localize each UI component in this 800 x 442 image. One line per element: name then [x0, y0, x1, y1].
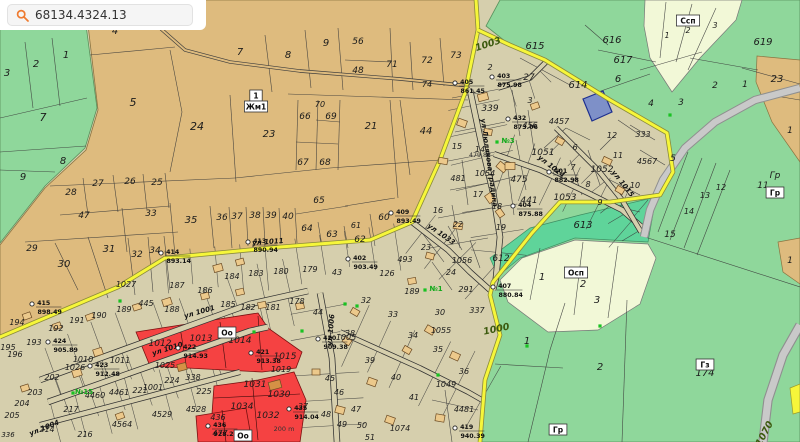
- map-label: 45: [325, 374, 335, 383]
- map-label: 1013: [190, 334, 213, 344]
- map-label: №1: [429, 285, 442, 293]
- map-label: 940.39: [461, 433, 485, 440]
- map-label: 1: [787, 256, 793, 266]
- green-point-marker: [118, 299, 121, 302]
- map-label: 421: [256, 349, 269, 356]
- map-label: №15: [75, 388, 93, 396]
- map-label: 2: [685, 26, 690, 35]
- map-label: 38: [249, 211, 261, 221]
- map-label: 32: [131, 250, 143, 260]
- map-label: 39: [365, 356, 375, 365]
- map-label: 893.49: [397, 218, 421, 225]
- map-label: 36: [216, 213, 228, 223]
- map-label: 13: [700, 191, 710, 200]
- map-label: 1056: [452, 256, 472, 265]
- map-label: 913.38: [257, 358, 281, 365]
- map-label: 60: [378, 213, 390, 223]
- map-label: 619: [753, 37, 772, 48]
- map-label: 420: [323, 335, 337, 342]
- map-label: 1: [539, 272, 545, 283]
- map-label: 617: [613, 55, 633, 66]
- map-label: 50: [357, 421, 367, 430]
- survey-point: [159, 251, 163, 255]
- map-label: 8: [285, 50, 291, 61]
- map-label: 9: [323, 38, 329, 49]
- green-point-marker: [598, 324, 601, 327]
- map-label: 338: [185, 373, 200, 382]
- map-label: 1: [787, 126, 793, 136]
- map-label: Оо: [221, 329, 233, 338]
- green-point-marker: [300, 329, 303, 332]
- map-label: 1049: [436, 380, 456, 389]
- map-label: 71: [386, 60, 397, 70]
- map-label: 3: [712, 21, 717, 30]
- map-label: 40: [282, 212, 294, 222]
- map-label: 4461: [109, 388, 129, 397]
- map-label: 882.98: [555, 177, 579, 184]
- map-label: 12: [716, 183, 726, 192]
- map-label: 404: [518, 202, 532, 209]
- map-label: 194: [9, 318, 24, 327]
- map-label: 202: [44, 373, 59, 382]
- map-label: 25: [151, 178, 163, 188]
- green-point-marker: [355, 304, 358, 307]
- map-label: 204: [14, 399, 29, 408]
- survey-point: [506, 117, 510, 121]
- map-label: 1: [664, 31, 669, 40]
- map-label: 38: [345, 329, 355, 338]
- map-label: 8: [60, 156, 66, 167]
- map-label: 68: [319, 158, 331, 168]
- map-label: 44: [313, 308, 323, 317]
- map-label: 27: [523, 73, 535, 83]
- map-label: 185: [220, 300, 235, 309]
- green-point-marker: [343, 302, 346, 305]
- map-label: 405: [460, 79, 473, 86]
- map-label: 5: [130, 96, 137, 109]
- map-label: 73: [450, 51, 462, 61]
- survey-point: [46, 340, 50, 344]
- map-label: 44: [420, 126, 433, 137]
- map-label: 184: [224, 272, 239, 281]
- green-point-marker: [252, 330, 255, 333]
- map-label: 861.45: [461, 88, 485, 95]
- map-label: 180: [273, 267, 288, 276]
- map-label: 1031: [244, 380, 267, 390]
- map-label: 29: [26, 244, 38, 254]
- map-label: 15: [664, 230, 676, 240]
- map-label: 30: [435, 308, 445, 317]
- map-label: 23: [771, 74, 784, 85]
- green-point-marker: [495, 140, 498, 143]
- map-label: 1074: [390, 424, 410, 433]
- map-label: 909.38: [324, 344, 348, 351]
- map-label: 27: [92, 179, 104, 189]
- survey-point: [246, 240, 250, 244]
- map-label: 186: [197, 286, 212, 295]
- map-label: 26: [124, 177, 136, 187]
- map-label: 414: [166, 249, 180, 256]
- map-label: 69: [325, 112, 337, 122]
- map-label: 1: [742, 80, 748, 90]
- building: [435, 414, 445, 422]
- map-label: 912.48: [96, 371, 120, 378]
- map-label: 481: [450, 174, 465, 183]
- search-panel: 68134.4324.13: [0, 0, 206, 30]
- map-label: 615: [525, 41, 544, 52]
- map-label: 875.88: [519, 211, 543, 218]
- map-label: Оо: [237, 432, 249, 441]
- map-label: 35: [185, 215, 198, 226]
- map-label: 1032: [257, 411, 280, 421]
- map-label: 419: [460, 424, 473, 431]
- map-label: 1026: [65, 363, 85, 372]
- map-label: 72: [421, 56, 433, 66]
- map-label: 70: [315, 100, 325, 109]
- map-label: 61: [351, 221, 361, 230]
- map-label: 3: [527, 96, 532, 105]
- map-label: 401: [554, 168, 567, 175]
- map-label: 16: [433, 206, 443, 215]
- map-label: 424: [53, 338, 67, 345]
- map-label: 9: [597, 198, 602, 207]
- map-label: 403: [497, 73, 510, 80]
- map-label: 21: [365, 121, 378, 132]
- survey-point: [206, 424, 210, 428]
- map-label: 2: [597, 362, 603, 373]
- map-label: 4: [648, 99, 654, 109]
- map-label: 19: [496, 223, 506, 232]
- map-label: 4567: [637, 157, 658, 166]
- survey-point: [316, 337, 320, 341]
- map-label: 32: [361, 296, 371, 305]
- map-label: 3: [4, 68, 10, 79]
- map-label: 15: [452, 142, 462, 151]
- map-label: 435: [294, 405, 307, 412]
- map-label: 189: [116, 305, 131, 314]
- survey-point: [176, 346, 180, 350]
- survey-point: [30, 302, 34, 306]
- map-label: 898.49: [38, 309, 62, 316]
- map-label: 24: [190, 120, 204, 133]
- survey-point: [547, 170, 551, 174]
- map-label: 2: [33, 59, 39, 70]
- map-label: 183: [248, 269, 263, 278]
- map-label: 291: [458, 285, 473, 294]
- map-label: 67: [297, 158, 309, 168]
- map-label: 614: [568, 80, 587, 91]
- map-label: 64: [301, 224, 313, 234]
- map-label: 1055: [431, 326, 451, 335]
- map-label: 1030: [268, 390, 291, 400]
- map-label: 4528: [186, 405, 206, 414]
- map-label: №3: [501, 137, 514, 145]
- map-label: 225: [196, 387, 211, 396]
- map-label: 65: [313, 196, 325, 206]
- map-label: 187: [169, 281, 185, 290]
- map-label: 7: [40, 111, 47, 124]
- map-label: 24: [446, 268, 456, 277]
- map-label: 4529: [152, 410, 172, 419]
- map-label: Ссп: [680, 17, 695, 26]
- map-label: 409: [396, 209, 409, 216]
- map-label: 74: [422, 80, 432, 89]
- map-label: 445: [138, 299, 153, 308]
- survey-point: [287, 407, 291, 411]
- map-label: 39: [265, 211, 277, 221]
- map-label: 914.04: [295, 414, 320, 421]
- map-label: 11: [613, 151, 623, 160]
- map-label: 1025: [155, 361, 175, 370]
- map-label: 179: [302, 265, 317, 274]
- map-label: 181: [265, 303, 280, 312]
- map-label: 880.84: [499, 292, 524, 299]
- map-label: 415: [37, 300, 50, 307]
- map-label: 56: [352, 37, 364, 47]
- map-label: 1001: [143, 383, 163, 392]
- green-point-marker: [525, 344, 528, 347]
- map-label: 192: [48, 324, 63, 333]
- survey-point: [88, 364, 92, 368]
- map-label: 41: [409, 393, 419, 402]
- map-label: 893.14: [167, 258, 192, 265]
- map-label: Жм1: [246, 103, 267, 112]
- map-label: 890.94: [254, 247, 279, 254]
- map-label: 178: [289, 297, 304, 306]
- map-label: 200 m: [274, 425, 295, 433]
- map-label: 34: [408, 331, 418, 340]
- map-label: 126: [379, 269, 394, 278]
- map-label: 613: [573, 220, 592, 231]
- map-label: 193: [26, 338, 41, 347]
- survey-point: [453, 426, 457, 430]
- map-label: Гр: [553, 426, 564, 435]
- map-label: 217: [63, 405, 79, 414]
- survey-point: [389, 211, 393, 215]
- map-label: 432: [513, 115, 526, 122]
- map-label: 1: [253, 92, 258, 101]
- map-label: 190: [91, 311, 106, 320]
- map-label: 422: [183, 344, 196, 351]
- map-label: 22: [453, 220, 463, 229]
- map-label: 51: [365, 433, 375, 442]
- map-label: 407: [498, 283, 511, 290]
- map-app: 4321789524789564871727374706669214423676…: [0, 0, 800, 442]
- map-label: 2: [487, 63, 492, 72]
- map-label: 47: [78, 211, 90, 221]
- map-label: 493: [397, 255, 412, 264]
- map-label: 66: [299, 112, 311, 122]
- survey-point: [249, 351, 253, 355]
- building: [312, 369, 320, 375]
- map-label: 2: [712, 81, 718, 91]
- map-label: 4481: [454, 405, 474, 414]
- map-label: 7: [237, 47, 244, 58]
- building: [438, 157, 448, 164]
- map-label: 905.89: [54, 347, 78, 354]
- map-label: 188: [164, 305, 179, 314]
- map-label: 205: [4, 411, 19, 420]
- map-label: 333: [635, 130, 650, 139]
- map-label: 43: [332, 268, 342, 277]
- green-point-marker: [423, 288, 426, 291]
- map-label: 1034: [231, 402, 254, 412]
- map-label: 216: [77, 430, 92, 439]
- map-label: 1053: [554, 193, 577, 203]
- map-label: 436: [210, 413, 225, 422]
- map-label: 48: [352, 66, 364, 76]
- map-label: 336: [1, 431, 15, 439]
- map-label: 413: [253, 238, 266, 245]
- map-label: 4564: [112, 420, 132, 429]
- map-label: 35: [433, 345, 443, 354]
- map-label: 337: [469, 306, 485, 315]
- map-label: 31: [103, 244, 116, 255]
- map-label: 479.82: [469, 152, 491, 159]
- map-label: 8: [585, 180, 590, 189]
- map-label: 4457: [549, 117, 570, 126]
- map-label: 6: [572, 143, 577, 152]
- map-label: 14: [684, 207, 694, 216]
- map-label: 616: [602, 35, 621, 46]
- map-label: 196: [7, 350, 22, 359]
- map-label: 23: [263, 129, 276, 140]
- map-label: Гр: [770, 171, 781, 181]
- building: [505, 163, 515, 170]
- survey-point: [490, 75, 494, 79]
- map-label: Гз: [700, 361, 709, 370]
- map-label: 1011: [110, 356, 130, 365]
- map-label: 612: [492, 254, 509, 264]
- map-label: 5: [670, 154, 676, 164]
- map-label: 49: [337, 420, 347, 429]
- map-label: 875.98: [498, 82, 522, 89]
- survey-point: [453, 81, 457, 85]
- map-label: 3: [678, 98, 684, 108]
- map-label: 47: [351, 405, 362, 414]
- search-value: 68134.4324.13: [35, 8, 127, 22]
- map-label: 37: [231, 212, 243, 222]
- map-label: 903.49: [354, 264, 378, 271]
- map-label: 475: [510, 175, 527, 185]
- map-label: 191: [69, 316, 84, 325]
- map-label: 182: [240, 303, 255, 312]
- map-label: 1: [63, 50, 69, 61]
- search-input[interactable]: 68134.4324.13: [7, 4, 193, 26]
- survey-point: [346, 257, 350, 261]
- green-point-marker: [668, 113, 671, 116]
- map-label: 224: [164, 376, 179, 385]
- map-label: 48: [321, 410, 331, 419]
- search-icon: [16, 9, 29, 22]
- map-label: 3: [594, 295, 600, 306]
- cadastral-map-viewport[interactable]: 4321789524789564871727374706669214423676…: [0, 0, 800, 442]
- map-label: 1019: [271, 365, 291, 374]
- map-label: 40: [391, 373, 401, 382]
- map-label: 17: [473, 190, 484, 199]
- map-label: 873.06: [514, 124, 539, 131]
- map-label: 6: [615, 74, 621, 85]
- green-point-marker: [436, 373, 439, 376]
- map-label: 46: [334, 388, 344, 397]
- map-label: 436: [213, 422, 227, 429]
- map-label: 36: [459, 367, 469, 376]
- map-label: 23: [421, 243, 431, 252]
- map-label: 62: [354, 235, 366, 245]
- map-label: 203: [27, 388, 42, 397]
- map-label: 33: [145, 209, 157, 219]
- map-label: 1027: [116, 280, 137, 289]
- map-label: 339: [481, 104, 498, 114]
- survey-point: [491, 285, 495, 289]
- map-label: 12: [607, 131, 617, 140]
- map-label: Осп: [568, 269, 584, 278]
- map-label: 63: [326, 230, 338, 240]
- map-label: Гр: [770, 189, 781, 198]
- map-label: 189: [404, 287, 419, 296]
- map-label: 9: [20, 172, 26, 183]
- map-label: 33: [388, 310, 398, 319]
- survey-point: [511, 204, 515, 208]
- map-label: 914.93: [184, 353, 208, 360]
- map-label: 2: [580, 279, 586, 290]
- map-label: 30: [58, 259, 71, 270]
- map-label: 402: [353, 255, 366, 262]
- building: [408, 277, 417, 284]
- map-label: 28: [65, 188, 77, 198]
- map-label: 423: [95, 362, 108, 369]
